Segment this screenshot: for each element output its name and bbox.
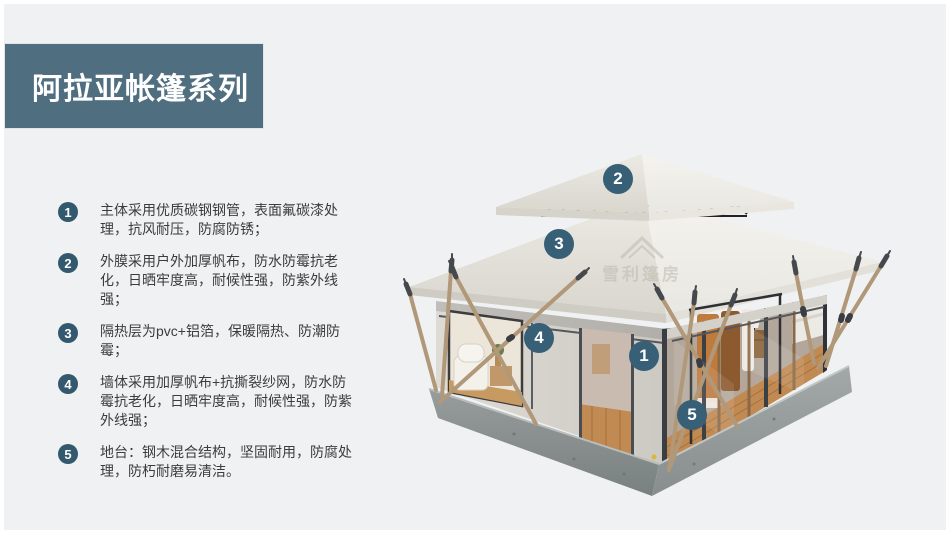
product-image-area: 雪利篷房 1 2 3 4 5 — [4, 4, 946, 530]
photo-callout-1: 1 — [629, 341, 659, 371]
anchor-plate — [652, 455, 657, 460]
photo-callout-4: 4 — [524, 323, 554, 353]
photo-callout-2: 2 — [603, 164, 633, 194]
top-roof — [496, 154, 794, 221]
slide-page: 阿拉亚帐篷系列 1 主体采用优质碳钢钢管，表面氟碳漆处理，抗风耐压，防腐防锈； … — [0, 0, 950, 534]
tent-render — [394, 144, 904, 534]
photo-callout-5: 5 — [677, 400, 707, 430]
photo-callout-3: 3 — [544, 229, 574, 259]
